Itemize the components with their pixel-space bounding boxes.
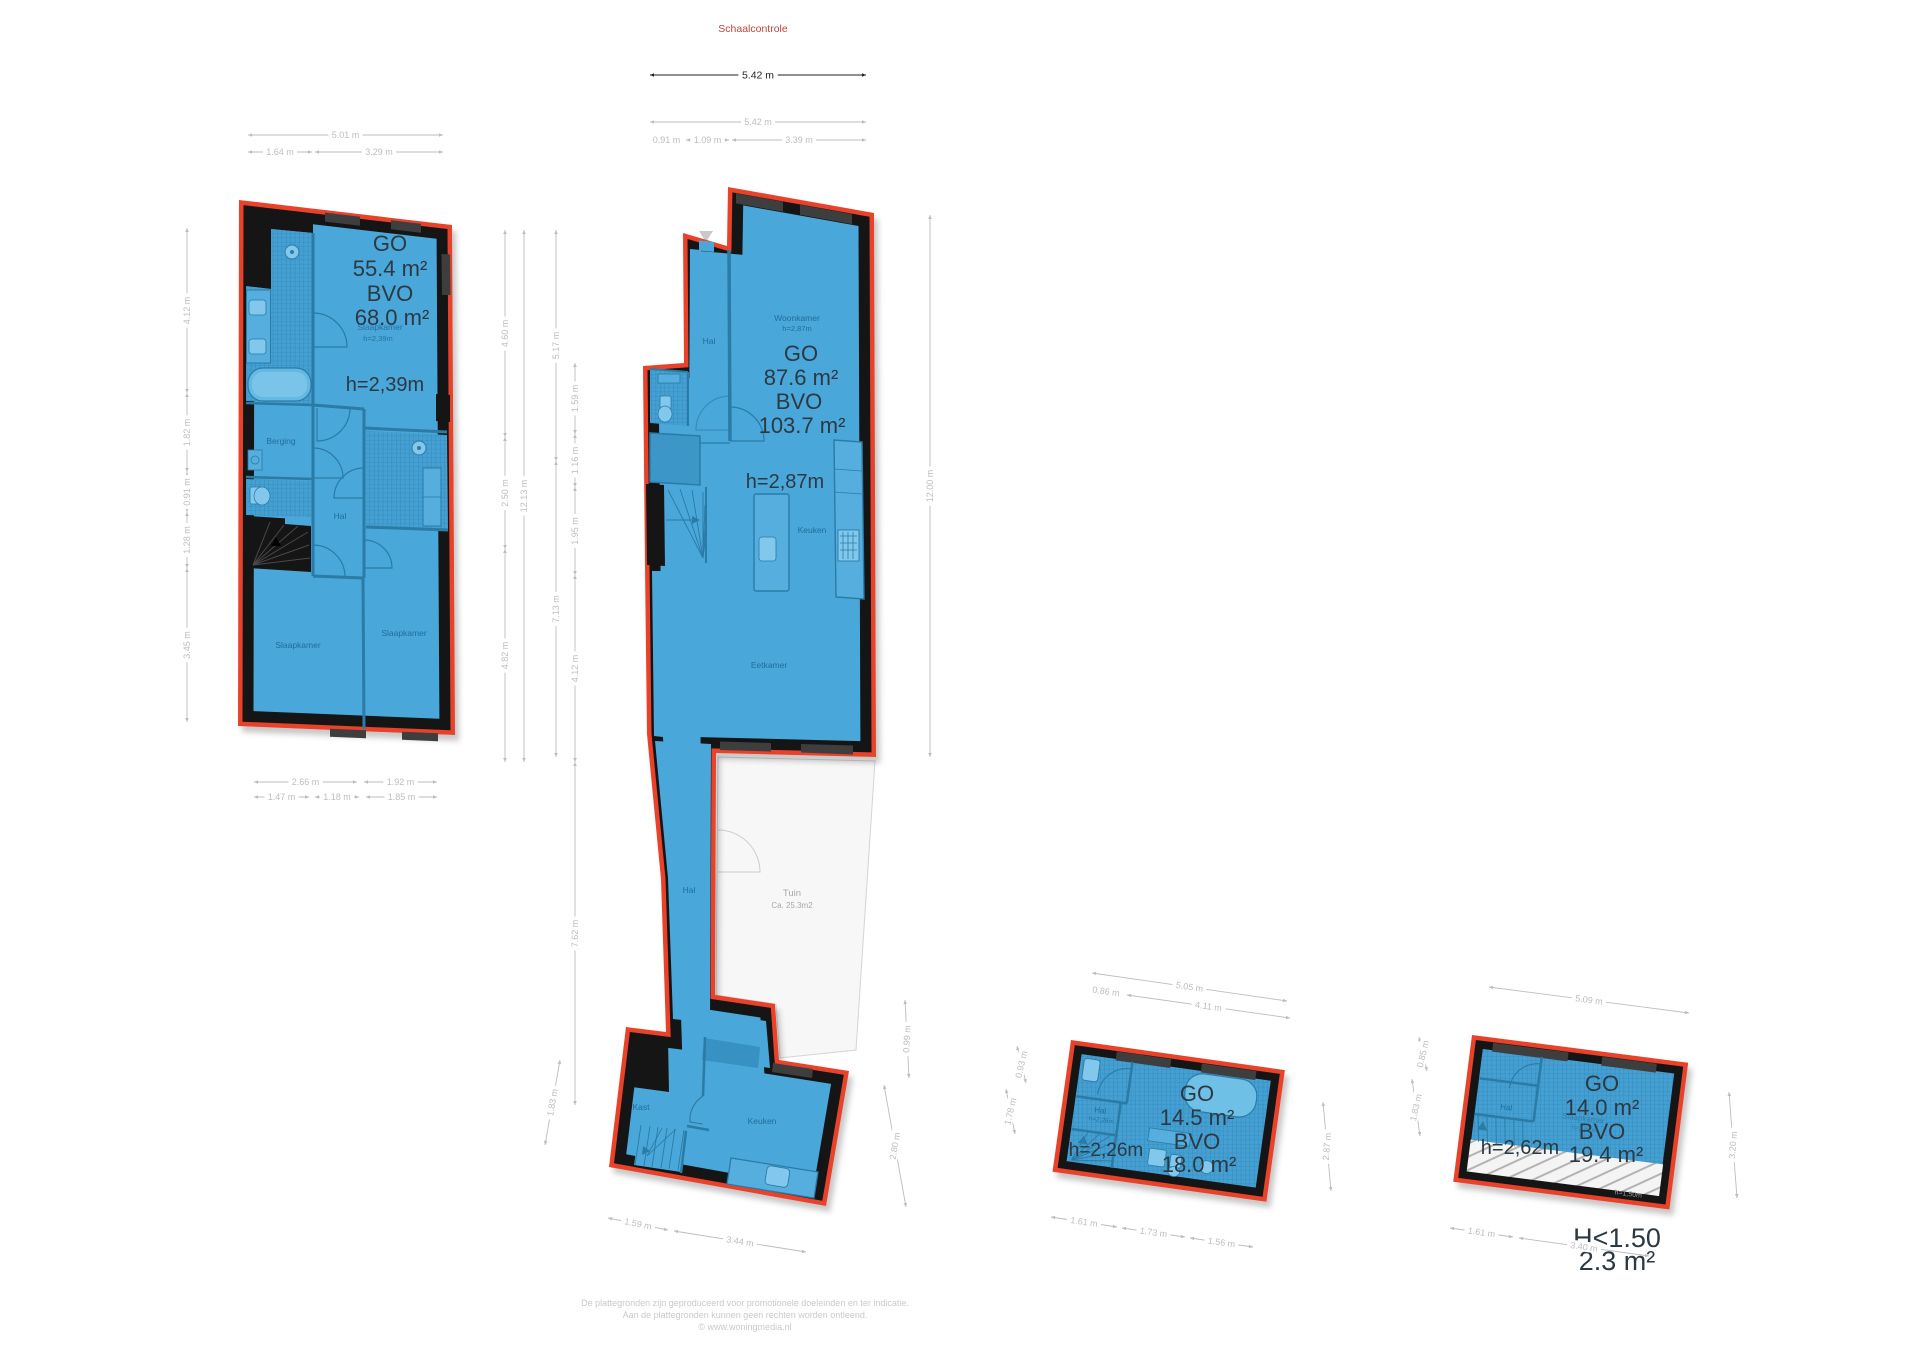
svg-text:GO: GO [1585, 1071, 1619, 1096]
svg-text:0.91 m: 0.91 m [653, 135, 681, 145]
svg-text:Schaalcontrole: Schaalcontrole [718, 23, 788, 35]
svg-text:h=2,39m: h=2,39m [363, 334, 392, 343]
svg-text:Kast: Kast [632, 1102, 650, 1112]
svg-text:h=2,87m: h=2,87m [782, 324, 811, 333]
svg-text:3.29 m: 3.29 m [365, 147, 393, 157]
svg-text:Keuken: Keuken [798, 525, 827, 535]
svg-text:55.4 m²: 55.4 m² [353, 256, 428, 281]
svg-text:Hal: Hal [683, 885, 696, 895]
svg-text:103.7 m²: 103.7 m² [759, 413, 846, 438]
svg-text:1.28 m: 1.28 m [182, 526, 192, 554]
svg-text:0.99 m: 0.99 m [901, 1025, 912, 1053]
svg-text:h=2,87m: h=2,87m [746, 471, 824, 493]
svg-text:2.50 m: 2.50 m [500, 479, 510, 507]
svg-text:1.16 m: 1.16 m [570, 447, 580, 475]
svg-text:De plattegronden zijn geproduc: De plattegronden zijn geproduceerd voor … [581, 1298, 909, 1308]
svg-text:Slaapkamer: Slaapkamer [381, 628, 427, 638]
svg-text:3.45 m: 3.45 m [182, 631, 192, 659]
svg-text:7.13 m: 7.13 m [551, 595, 561, 623]
svg-text:Keuken: Keuken [748, 1116, 777, 1126]
svg-text:h=2,62m: h=2,62m [1481, 1137, 1559, 1159]
svg-text:4.12 m: 4.12 m [570, 655, 580, 683]
svg-text:1.18 m: 1.18 m [323, 792, 351, 802]
svg-text:h=2,39m: h=2,39m [346, 374, 424, 396]
svg-text:18.0 m²: 18.0 m² [1162, 1152, 1237, 1177]
svg-text:Ca. 25.3m2: Ca. 25.3m2 [771, 901, 813, 910]
svg-text:1.64 m: 1.64 m [266, 147, 294, 157]
svg-text:1.92 m: 1.92 m [387, 777, 415, 787]
svg-text:Hal: Hal [1500, 1102, 1513, 1112]
svg-text:Woonkamer: Woonkamer [774, 313, 820, 323]
svg-text:BVO: BVO [1174, 1129, 1220, 1154]
svg-text:1.82 m: 1.82 m [182, 419, 192, 447]
svg-text:Eetkamer: Eetkamer [751, 660, 788, 670]
svg-text:1.47 m: 1.47 m [268, 792, 296, 802]
svg-text:Tuin: Tuin [783, 888, 801, 899]
svg-text:5.17 m: 5.17 m [551, 332, 561, 360]
svg-text:Slaapkamer: Slaapkamer [275, 640, 321, 650]
svg-text:BVO: BVO [776, 389, 822, 414]
svg-text:87.6 m²: 87.6 m² [764, 365, 839, 390]
svg-text:1.85 m: 1.85 m [388, 792, 416, 802]
svg-text:1.09 m: 1.09 m [694, 135, 722, 145]
svg-text:Hal: Hal [703, 336, 716, 346]
svg-text:4.82 m: 4.82 m [500, 642, 510, 670]
svg-text:GO: GO [1180, 1081, 1214, 1106]
svg-text:1.95 m: 1.95 m [570, 517, 580, 545]
svg-text:Berging: Berging [266, 436, 296, 446]
svg-text:19.4 m²: 19.4 m² [1569, 1142, 1644, 1167]
svg-text:2.66 m: 2.66 m [292, 777, 320, 787]
svg-text:Hal: Hal [1094, 1105, 1107, 1116]
svg-text:1.59 m: 1.59 m [570, 385, 580, 413]
svg-text:4.60 m: 4.60 m [500, 320, 510, 348]
svg-text:5.01 m: 5.01 m [332, 130, 360, 140]
svg-text:h=2,26m: h=2,26m [1069, 1140, 1143, 1161]
svg-text:7.62 m: 7.62 m [570, 920, 580, 948]
svg-text:GO: GO [784, 341, 818, 366]
svg-text:12.00 m: 12.00 m [925, 470, 935, 503]
svg-text:4.12 m: 4.12 m [182, 297, 192, 325]
svg-text:Hal: Hal [334, 511, 347, 521]
svg-text:68.0 m²: 68.0 m² [355, 305, 430, 330]
svg-text:12.13 m: 12.13 m [519, 480, 529, 513]
svg-text:GO: GO [373, 231, 407, 256]
svg-text:5.42 m: 5.42 m [742, 69, 774, 81]
svg-text:5.42 m: 5.42 m [744, 117, 772, 127]
svg-text:© www.woningmedia.nl: © www.woningmedia.nl [698, 1322, 791, 1332]
svg-text:14.5 m²: 14.5 m² [1160, 1105, 1235, 1130]
svg-text:0.91 m: 0.91 m [182, 478, 192, 506]
svg-text:BVO: BVO [367, 281, 413, 306]
svg-text:Aan de plattegronden kunnen ge: Aan de plattegronden kunnen geen rechten… [623, 1310, 868, 1320]
svg-text:3.39 m: 3.39 m [785, 135, 813, 145]
